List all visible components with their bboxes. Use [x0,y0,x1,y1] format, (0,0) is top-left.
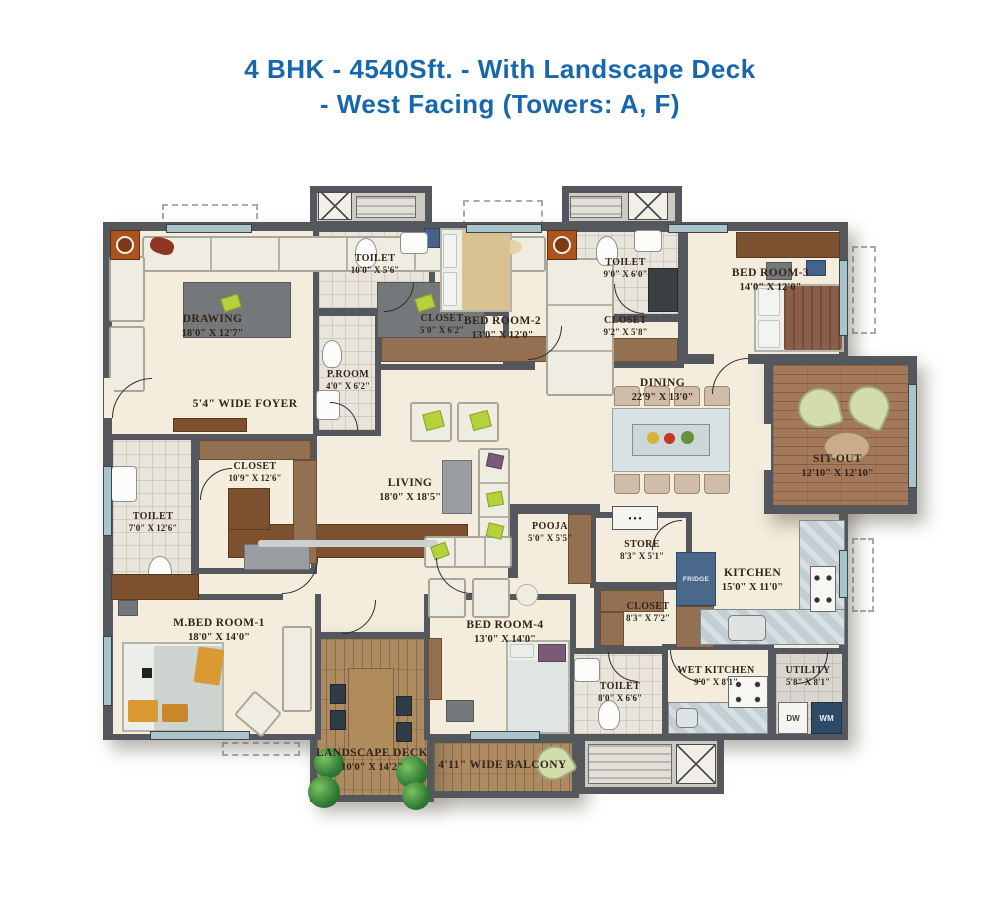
room-label-balcony: 4'11" WIDE BALCONY [430,758,575,773]
floor-plan: • • • FRIDGE DW WM [0,0,1000,900]
stool [118,600,138,616]
orange-pillow [162,704,188,722]
window [839,550,848,598]
window [150,731,250,740]
room-label-pooja: POOJA 5'0" X 5'5" [500,520,600,545]
room-label-store: STORE 8'3" X 5'1" [594,538,690,563]
food-plate [647,432,659,444]
kitchen-sink [728,615,766,641]
duct-x-box [628,192,668,220]
wall-segment [678,226,688,364]
plant [402,782,430,810]
room-label-bedroom-3: BED ROOM-3 14'0" X 12'0" [698,266,843,295]
dining-chair [704,474,730,494]
wall-segment [748,354,848,364]
orange-pillow [128,700,158,722]
room-label-toilet-4: TOILET 8'0" X 6'6" [572,680,668,705]
duct-x-box [318,192,352,220]
tv [258,540,438,547]
room-label-master-toilet: TOILET 7'0" X 12'6" [110,510,196,535]
deck-table [348,668,394,756]
closet-island [228,488,270,530]
window [103,636,112,706]
room-label-toilet-3: TOILET 9'0" X 6'0" [568,256,683,281]
wall-segment [678,354,714,364]
orange-throw [194,646,225,685]
dining-chair [614,474,640,494]
room-label-foyer: 5'4" WIDE FOYER [155,397,335,412]
washing-machine: WM [811,702,842,734]
dishwasher-label: DW [786,714,799,723]
bed-blanket [462,230,510,310]
bed-pillow [443,234,457,268]
duct-louver [588,744,672,784]
room-label-master-closet: CLOSET 10'9" X 12'6" [196,460,314,485]
sitout-opening [757,424,771,470]
wash-basin [634,230,662,252]
wet-kitchen-sink [676,708,698,728]
round-stool [516,584,538,606]
window [466,224,542,233]
floor-plan-page: 4 BHK - 4540Sft. - With Landscape Deck -… [0,0,1000,900]
wash-basin [111,466,137,502]
dining-chair [644,474,670,494]
wall-segment [508,504,600,514]
bed-blanket [508,660,568,732]
room-label-bedroom-4: BED ROOM-4 13'0" X 14'0" [435,618,575,647]
food-plate [681,431,694,444]
room-label-dining: DINING 22'9" X 13'0" [595,376,730,405]
study-desk [736,232,840,258]
room-label-master-bedroom: M.BED ROOM-1 18'0" X 14'0" [140,616,298,645]
room-label-living: LIVING 18'0" X 18'5" [345,476,475,505]
room-label-closet-3: CLOSET 9'2" X 5'8" [568,314,683,339]
vanity-counter [111,574,199,600]
wash-basin [400,232,428,254]
book [138,668,152,678]
deck-chair [330,710,346,730]
duct-louver [570,196,622,218]
dishwasher: DW [778,702,808,734]
bed-pillow [538,644,566,662]
seat-cushion [472,578,510,618]
wardrobe [428,638,442,700]
foyer-console [173,418,247,432]
chair [446,700,474,722]
window [166,224,252,233]
room-label-utility: UTILITY 5'8" X 8'1" [768,664,848,689]
geyser-appliance: • • • [612,506,658,530]
bed-pillow [443,272,457,306]
room-label-kitchen: KITCHEN 15'0" X 11'0" [690,566,815,595]
projection-dashed [852,538,874,612]
room-label-closet-4: CLOSET 8'3" X 7'2" [600,600,696,625]
bed-pillow [758,320,780,348]
kitchen-counter-bottom [700,609,845,645]
room-label-toilet-2: TOILET 10'0" X 5'6" [316,252,434,277]
dining-chair [674,474,700,494]
toilet-wc [322,340,342,368]
side-table [110,230,140,260]
room-label-drawing: DRAWING 18'0" X 12'7" [140,312,285,341]
room-label-deck: LANDSCAPE DECK 10'0" X 14'2" [312,746,432,775]
projection-dashed [852,246,876,334]
projection-dashed [222,742,300,756]
window [470,731,540,740]
food-plate [664,433,675,444]
window [908,384,917,488]
room-label-powder-room: P.ROOM 4'0" X 6'2" [308,368,388,393]
duct-louver [356,196,416,218]
duct-x-box [676,744,716,784]
deck-chair [330,684,346,704]
sofa-cushion [486,452,505,469]
window [668,224,728,233]
room-label-bedroom-2: BED ROOM-2 13'0" X 12'0" [435,314,570,343]
bed-blanket [784,286,842,350]
deck-chair [396,722,412,742]
washing-machine-label: WM [819,714,833,723]
sofa-cushion [486,491,504,508]
wash-basin [574,658,600,682]
wardrobe [199,440,311,460]
deck-chair [396,696,412,716]
door-opening [434,592,464,602]
room-label-sitout: SIT-OUT 12'10" X 12'10" [770,452,905,481]
plant [308,776,340,808]
room-label-wet-kitchen: WET KITCHEN 9'0" X 8'1" [660,664,772,689]
